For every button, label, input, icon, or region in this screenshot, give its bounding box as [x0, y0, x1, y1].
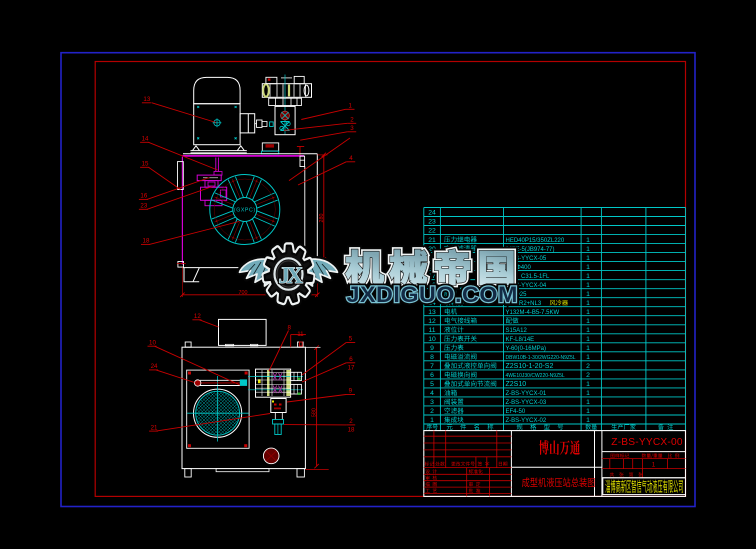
svg-text:1: 1 — [586, 390, 590, 397]
svg-text:13: 13 — [428, 309, 436, 316]
svg-text:1: 1 — [586, 318, 590, 325]
svg-text:Y132M-4-B5-7.5KW: Y132M-4-B5-7.5KW — [506, 310, 560, 316]
svg-text:Z2S10: Z2S10 — [506, 381, 527, 388]
svg-text:1: 1 — [652, 462, 656, 469]
svg-text:Φ400: Φ400 — [516, 265, 531, 271]
svg-text:Y-60(0-16MPa): Y-60(0-16MPa) — [506, 346, 546, 352]
svg-text:9: 9 — [430, 345, 434, 352]
svg-text:11: 11 — [297, 331, 304, 338]
svg-text:1: 1 — [586, 282, 590, 289]
svg-text:1: 1 — [349, 103, 353, 110]
svg-text:1: 1 — [586, 237, 590, 244]
svg-text:18: 18 — [143, 238, 150, 245]
svg-text:13: 13 — [143, 96, 150, 103]
svg-text:Z-BS-YYCX-01: Z-BS-YYCX-01 — [506, 391, 547, 397]
svg-text:8: 8 — [430, 354, 434, 361]
svg-text:4WE10J30/CW220-N9Z5L: 4WE10J30/CW220-N9Z5L — [506, 373, 565, 379]
svg-text:15: 15 — [142, 161, 149, 168]
svg-text:11: 11 — [428, 327, 435, 334]
svg-text:EF4-50: EF4-50 — [506, 409, 526, 415]
svg-text:9: 9 — [349, 388, 353, 395]
svg-text:C31.5-1FL: C31.5-1FL — [521, 274, 550, 280]
svg-text:S15A12: S15A12 — [506, 328, 528, 334]
svg-text:1: 1 — [586, 255, 590, 262]
svg-text:1: 1 — [586, 291, 590, 298]
svg-text:6: 6 — [349, 356, 353, 363]
svg-text:21: 21 — [151, 424, 158, 431]
svg-text:HED40P15/350ZL220: HED40P15/350ZL220 — [506, 238, 565, 244]
svg-text:Z-BS-YYCX-02: Z-BS-YYCX-02 — [506, 418, 547, 424]
svg-text:24: 24 — [151, 363, 158, 370]
svg-text:2: 2 — [586, 363, 590, 370]
svg-text:1: 1 — [586, 336, 590, 343]
svg-text:1: 1 — [586, 246, 590, 253]
svg-text:KF-L8/14E: KF-L8/14E — [506, 337, 535, 343]
svg-text:2: 2 — [349, 418, 353, 425]
svg-text:1: 1 — [586, 399, 590, 406]
svg-text:Z-BS-YYCX-03: Z-BS-YYCX-03 — [506, 400, 547, 406]
svg-text:18: 18 — [348, 426, 355, 433]
svg-text:4: 4 — [430, 390, 434, 397]
svg-text:5: 5 — [349, 336, 353, 343]
svg-text:1: 1 — [586, 300, 590, 307]
svg-text:1: 1 — [586, 264, 590, 271]
svg-text:DBW10B-1-30/2WG220-N9Z5L: DBW10B-1-30/2WG220-N9Z5L — [506, 355, 576, 361]
svg-text:2: 2 — [430, 408, 434, 415]
svg-text:1: 1 — [430, 417, 434, 424]
svg-text:10: 10 — [149, 339, 156, 346]
svg-text:22: 22 — [428, 228, 436, 235]
svg-text:3: 3 — [350, 125, 354, 132]
svg-text:1: 1 — [586, 417, 590, 424]
svg-text:1: 1 — [586, 309, 590, 316]
svg-text:16: 16 — [140, 193, 147, 200]
svg-text:2: 2 — [350, 117, 354, 124]
svg-text:21: 21 — [428, 237, 436, 244]
svg-text:1: 1 — [586, 381, 590, 388]
svg-text:(GXPC): (GXPC) — [234, 208, 256, 214]
svg-text:Z-BS-YYCX-00: Z-BS-YYCX-00 — [611, 437, 683, 448]
svg-text:R2+NL3: R2+NL3 — [519, 301, 542, 307]
svg-text:12: 12 — [428, 318, 436, 325]
svg-text:1: 1 — [586, 408, 590, 415]
svg-text:1: 1 — [586, 327, 590, 334]
svg-text:10: 10 — [428, 336, 436, 343]
svg-text:280: 280 — [319, 214, 325, 223]
svg-text:3: 3 — [430, 399, 434, 406]
svg-text:1: 1 — [586, 345, 590, 352]
svg-text:5: 5 — [430, 381, 434, 388]
svg-text:700: 700 — [239, 290, 248, 296]
svg-text:JXDIGUO.COM: JXDIGUO.COM — [347, 282, 519, 307]
svg-text:23: 23 — [140, 203, 147, 210]
svg-text:1: 1 — [586, 273, 590, 280]
svg-text:Z2S10-1-20-S2: Z2S10-1-20-S2 — [506, 363, 554, 370]
svg-text:7: 7 — [430, 363, 434, 370]
svg-text:17: 17 — [348, 364, 355, 371]
svg-text:6: 6 — [430, 372, 434, 379]
svg-text:12: 12 — [194, 313, 201, 320]
svg-text:4: 4 — [349, 155, 353, 162]
svg-text:1: 1 — [586, 354, 590, 361]
svg-text:14: 14 — [142, 136, 149, 143]
svg-text:580: 580 — [311, 408, 317, 417]
svg-text:24: 24 — [428, 210, 436, 217]
svg-text:23: 23 — [428, 219, 436, 226]
svg-text:2: 2 — [586, 372, 590, 379]
